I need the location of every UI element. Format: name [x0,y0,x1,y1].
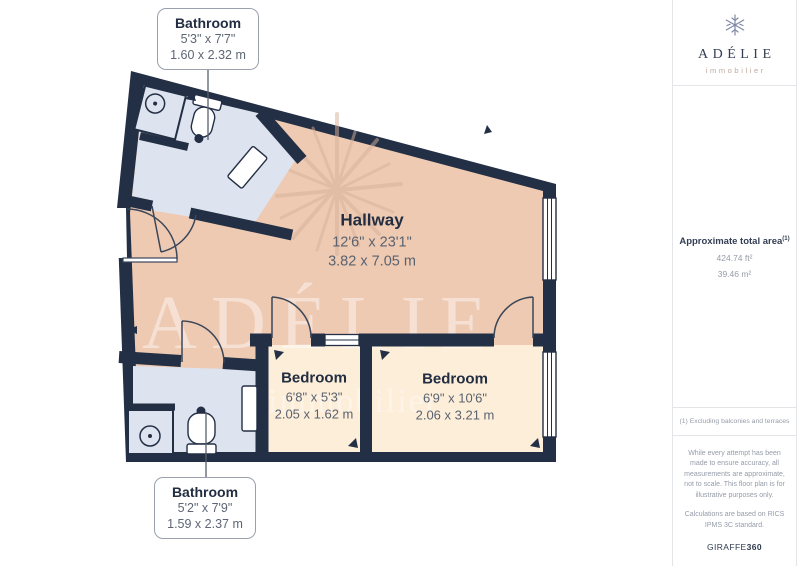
brand-tagline: immobilier [673,66,796,75]
room-dimensions-metric: 2.05 x 1.62 m [275,406,354,423]
disclaimer-text: While every attempt has been made to ens… [681,449,788,502]
info-sidebar: ADÉLIE immobilier Approximate total area… [672,0,797,566]
room-dimensions-imperial: 12'6" x 23'1" [328,233,416,252]
bedroom-large-label: Bedroom 6'9" x 10'6" 2.06 x 3.21 m [416,370,495,423]
floor-plan: ADÉLIE immobilier [0,0,672,566]
disclaimer-section: While every attempt has been made to ens… [673,436,796,566]
area-footnote: (1) Excluding balconies and terraces [673,407,796,436]
total-area-metric: 39.46 m² [673,269,796,279]
bedroom-small-label: Bedroom 6'8" x 5'3" 2.05 x 1.62 m [275,369,354,422]
sidebar-spacer [673,279,796,407]
room-name: Bathroom [159,484,251,500]
window-right-lower [543,352,556,437]
room-dimensions-imperial: 5'3" x 7'7" [162,31,254,47]
bathroom-bottom-callout: Bathroom 5'2" x 7'9" 1.59 x 2.37 m [154,477,256,539]
room-dimensions-imperial: 6'8" x 5'3" [275,388,354,405]
room-dimensions-metric: 1.60 x 2.32 m [162,47,254,63]
room-dimensions-metric: 3.82 x 7.05 m [328,253,416,272]
entry-opening [111,208,127,258]
entry-door-leaf [123,258,177,262]
floorplan-page: ADÉLIE immobilier [0,0,800,566]
room-dimensions-imperial: 6'9" x 10'6" [416,389,495,406]
snowflake-icon [723,13,747,37]
room-dimensions-imperial: 5'2" x 7'9" [159,500,251,516]
bathroom-top-callout: Bathroom 5'3" x 7'7" 1.60 x 2.32 m [157,8,259,70]
brand-name: ADÉLIE [673,47,796,63]
standard-note: Calculations are based on RICS IPMS 3C s… [681,510,788,531]
room-name: Bathroom [162,15,254,31]
room-dimensions-metric: 1.59 x 2.37 m [159,516,251,532]
provider-logo: GIRAFFE360 [681,541,788,554]
hallway-label: Hallway 12'6" x 23'1" 3.82 x 7.05 m [328,210,416,271]
brand-logo: ADÉLIE immobilier [673,0,796,86]
total-area-label: Approximate total area [679,236,782,247]
room-name: Bedroom [275,369,354,386]
total-area-imperial: 424.74 ft² [673,253,796,263]
room-dimensions-metric: 2.06 x 3.21 m [416,407,495,424]
room-name: Hallway [328,210,416,230]
total-area-title: Approximate total area(1) [673,236,796,247]
window-right-upper [543,198,556,280]
sink-icon-bottom [242,386,257,431]
shower-icon-bottom [128,410,173,454]
total-area-section: Approximate total area(1) 424.74 ft² 39.… [673,236,796,279]
total-area-note-ref: (1) [782,236,789,242]
provider-suffix: 360 [747,542,762,552]
room-name: Bedroom [416,370,495,387]
provider-name: GIRAFFE [707,542,747,552]
